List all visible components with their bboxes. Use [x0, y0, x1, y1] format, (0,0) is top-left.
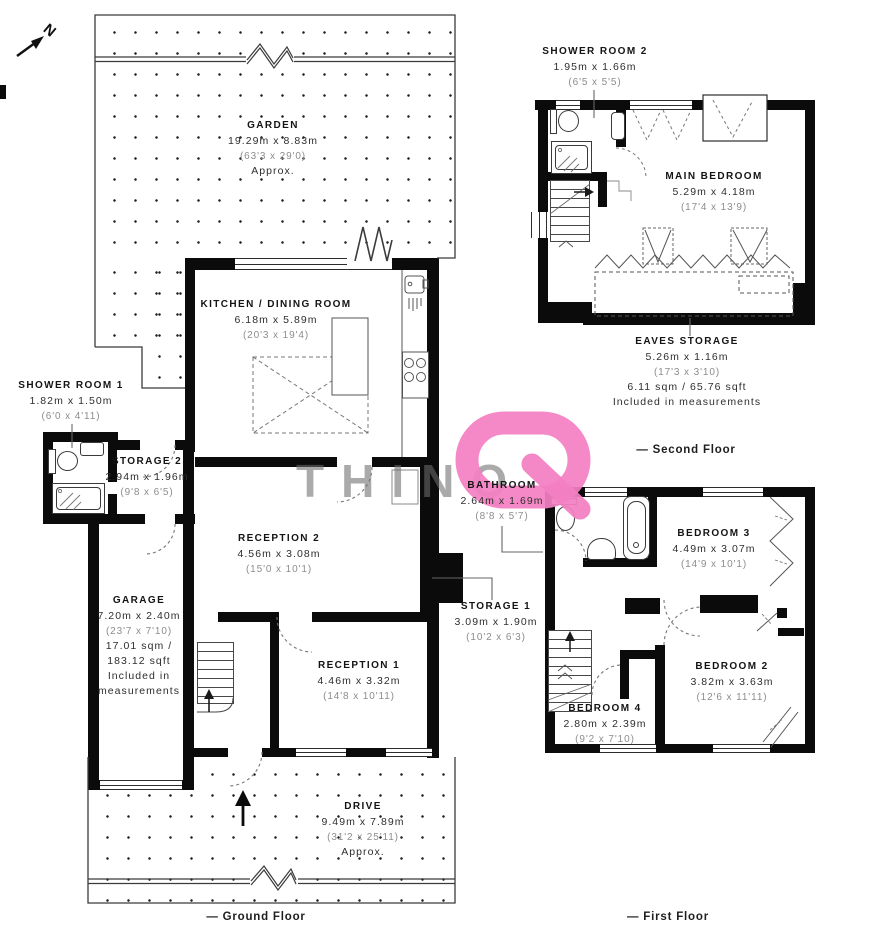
room-label-eaves-storage: EAVES STORAGE 5.26m x 1.16m (17'3 x 3'10…: [613, 334, 761, 410]
room-label-shower-room-1: SHOWER ROOM 1 1.82m x 1.50m (6'0 x 4'11): [18, 378, 123, 424]
room-label-kitchen-dining: KITCHEN / DINING ROOM 6.18m x 5.89m (20'…: [200, 297, 351, 343]
room-label-garden: GARDEN 19.29m x 8.83m (63'3 x 29'0) Appr…: [228, 118, 318, 179]
caption-ground-floor: — Ground Floor: [206, 911, 305, 923]
caption-second-floor: — Second Floor: [636, 444, 735, 456]
room-label-garage: GARAGE 7.20m x 2.40m (23'7 x 7'10) 17.01…: [97, 593, 180, 700]
room-label-storage-1: STORAGE 1 3.09m x 1.90m (10'2 x 6'3): [454, 599, 537, 645]
room-label-shower-room-2: SHOWER ROOM 2 1.95m x 1.66m (6'5 x 5'5): [542, 44, 647, 90]
room-label-reception-1: RECEPTION 1 4.46m x 3.32m (14'8 x 10'11): [317, 658, 400, 704]
floorplan-page: THINQ N GARDEN 19.29m x 8.83m (63'3 x 29…: [0, 0, 881, 947]
caption-first-floor: — First Floor: [627, 911, 709, 923]
room-label-reception-2: RECEPTION 2 4.56m x 3.08m (15'0 x 10'1): [237, 531, 320, 577]
room-label-bedroom-3: BEDROOM 3 4.49m x 3.07m (14'9 x 10'1): [672, 526, 755, 572]
room-label-bedroom-4: BEDROOM 4 2.80m x 2.39m (9'2 x 7'10): [563, 701, 646, 747]
room-label-bedroom-2: BEDROOM 2 3.82m x 3.63m (12'6 x 11'11): [690, 659, 773, 705]
room-label-main-bedroom: MAIN BEDROOM 5.29m x 4.18m (17'4 x 13'9): [665, 169, 762, 215]
room-label-bathroom: BATHROOM 2.64m x 1.69m (8'8 x 5'7): [460, 478, 543, 524]
room-label-drive: DRIVE 9.49m x 7.89m (31'2 x 25'11) Appro…: [321, 799, 404, 860]
room-label-storage-2: STORAGE 2 2.94m x 1.96m (9'8 x 6'5): [105, 454, 188, 500]
